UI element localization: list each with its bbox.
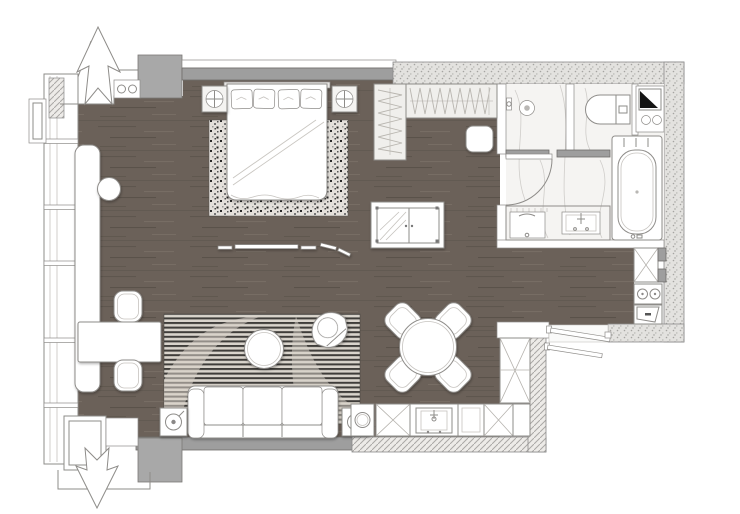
sofa-cushion	[204, 387, 243, 425]
toilet	[586, 95, 631, 124]
window-wall	[44, 74, 78, 464]
hatch-wall-bottom	[352, 437, 546, 452]
entry-arrow-top	[77, 27, 120, 104]
floor-plan-drawing	[0, 0, 740, 514]
double-bed	[224, 82, 330, 200]
exterior-wall-top	[393, 62, 684, 84]
corner-cabinet	[513, 404, 530, 436]
mullion	[44, 403, 78, 408]
pillow	[231, 89, 253, 109]
coffee-table	[245, 330, 284, 369]
floor-plan-page	[0, 0, 740, 514]
door-leaf	[547, 345, 602, 358]
oven	[634, 305, 662, 324]
under-counter-appliance	[351, 404, 374, 436]
kitchen-counter-vertical	[500, 338, 530, 403]
shower-partition	[566, 84, 574, 152]
cabinet-handle	[411, 225, 413, 227]
side-table	[78, 322, 161, 362]
nightstand-right	[332, 86, 357, 112]
kitchen-column-right	[634, 248, 666, 324]
nightstand-left	[202, 86, 227, 112]
door-stop	[605, 332, 611, 338]
kitchen-sink	[410, 404, 458, 436]
top-wall-ledge	[182, 60, 396, 68]
sofa-cushion	[243, 387, 282, 425]
exterior-wall-bottom-right	[608, 324, 684, 342]
sofa	[188, 386, 338, 438]
pilaster	[658, 248, 666, 261]
bathroom-door-leaf	[506, 154, 552, 159]
desk-chair-top	[114, 291, 142, 322]
pillow	[300, 89, 322, 109]
oven-handle	[645, 313, 651, 316]
exterior-wall-right	[664, 62, 684, 342]
tv-cabinet	[371, 202, 444, 248]
ottoman	[466, 126, 493, 152]
cooktop	[634, 284, 662, 304]
vanity-cabinet	[510, 212, 545, 238]
bathroom	[497, 84, 664, 248]
mullion	[44, 205, 78, 210]
bathtub	[612, 136, 662, 240]
pilaster	[658, 269, 666, 282]
tub-drain	[635, 190, 638, 193]
entry-door	[545, 325, 612, 358]
utility-unit	[636, 86, 664, 132]
top-wall	[182, 68, 396, 80]
utility-knob	[642, 116, 651, 125]
facade-box-top-left	[29, 99, 46, 143]
bathroom-wall-left-upper	[497, 84, 506, 154]
desk-stool	[98, 178, 121, 201]
pillow	[278, 89, 300, 109]
partition-bar-right	[557, 150, 610, 157]
desk-chair-bottom	[114, 360, 142, 391]
column-top-left	[138, 55, 182, 98]
kitchen-counter-bottom	[351, 404, 530, 436]
window-hatch-section	[49, 78, 64, 118]
sofa-cushion	[282, 387, 322, 425]
lamp-table-left	[160, 408, 187, 436]
sofa-armrest-right	[322, 389, 338, 438]
sofa-armrest-left	[188, 389, 204, 438]
bathroom-wall-bottom	[497, 240, 664, 248]
mullion	[44, 338, 78, 343]
appliance-two-knobs	[114, 80, 140, 98]
cabinet-handle	[405, 225, 407, 227]
wood-floor-corridor	[500, 246, 634, 326]
column-bottom-left	[138, 438, 182, 482]
step-box	[106, 418, 138, 446]
pillow	[253, 89, 275, 109]
utility-knob	[653, 116, 662, 125]
hatch-wall-entry	[528, 337, 546, 452]
mullion	[44, 139, 78, 144]
dining-table	[400, 319, 457, 376]
mullion	[44, 261, 78, 266]
entry-wall-piece	[497, 322, 549, 338]
